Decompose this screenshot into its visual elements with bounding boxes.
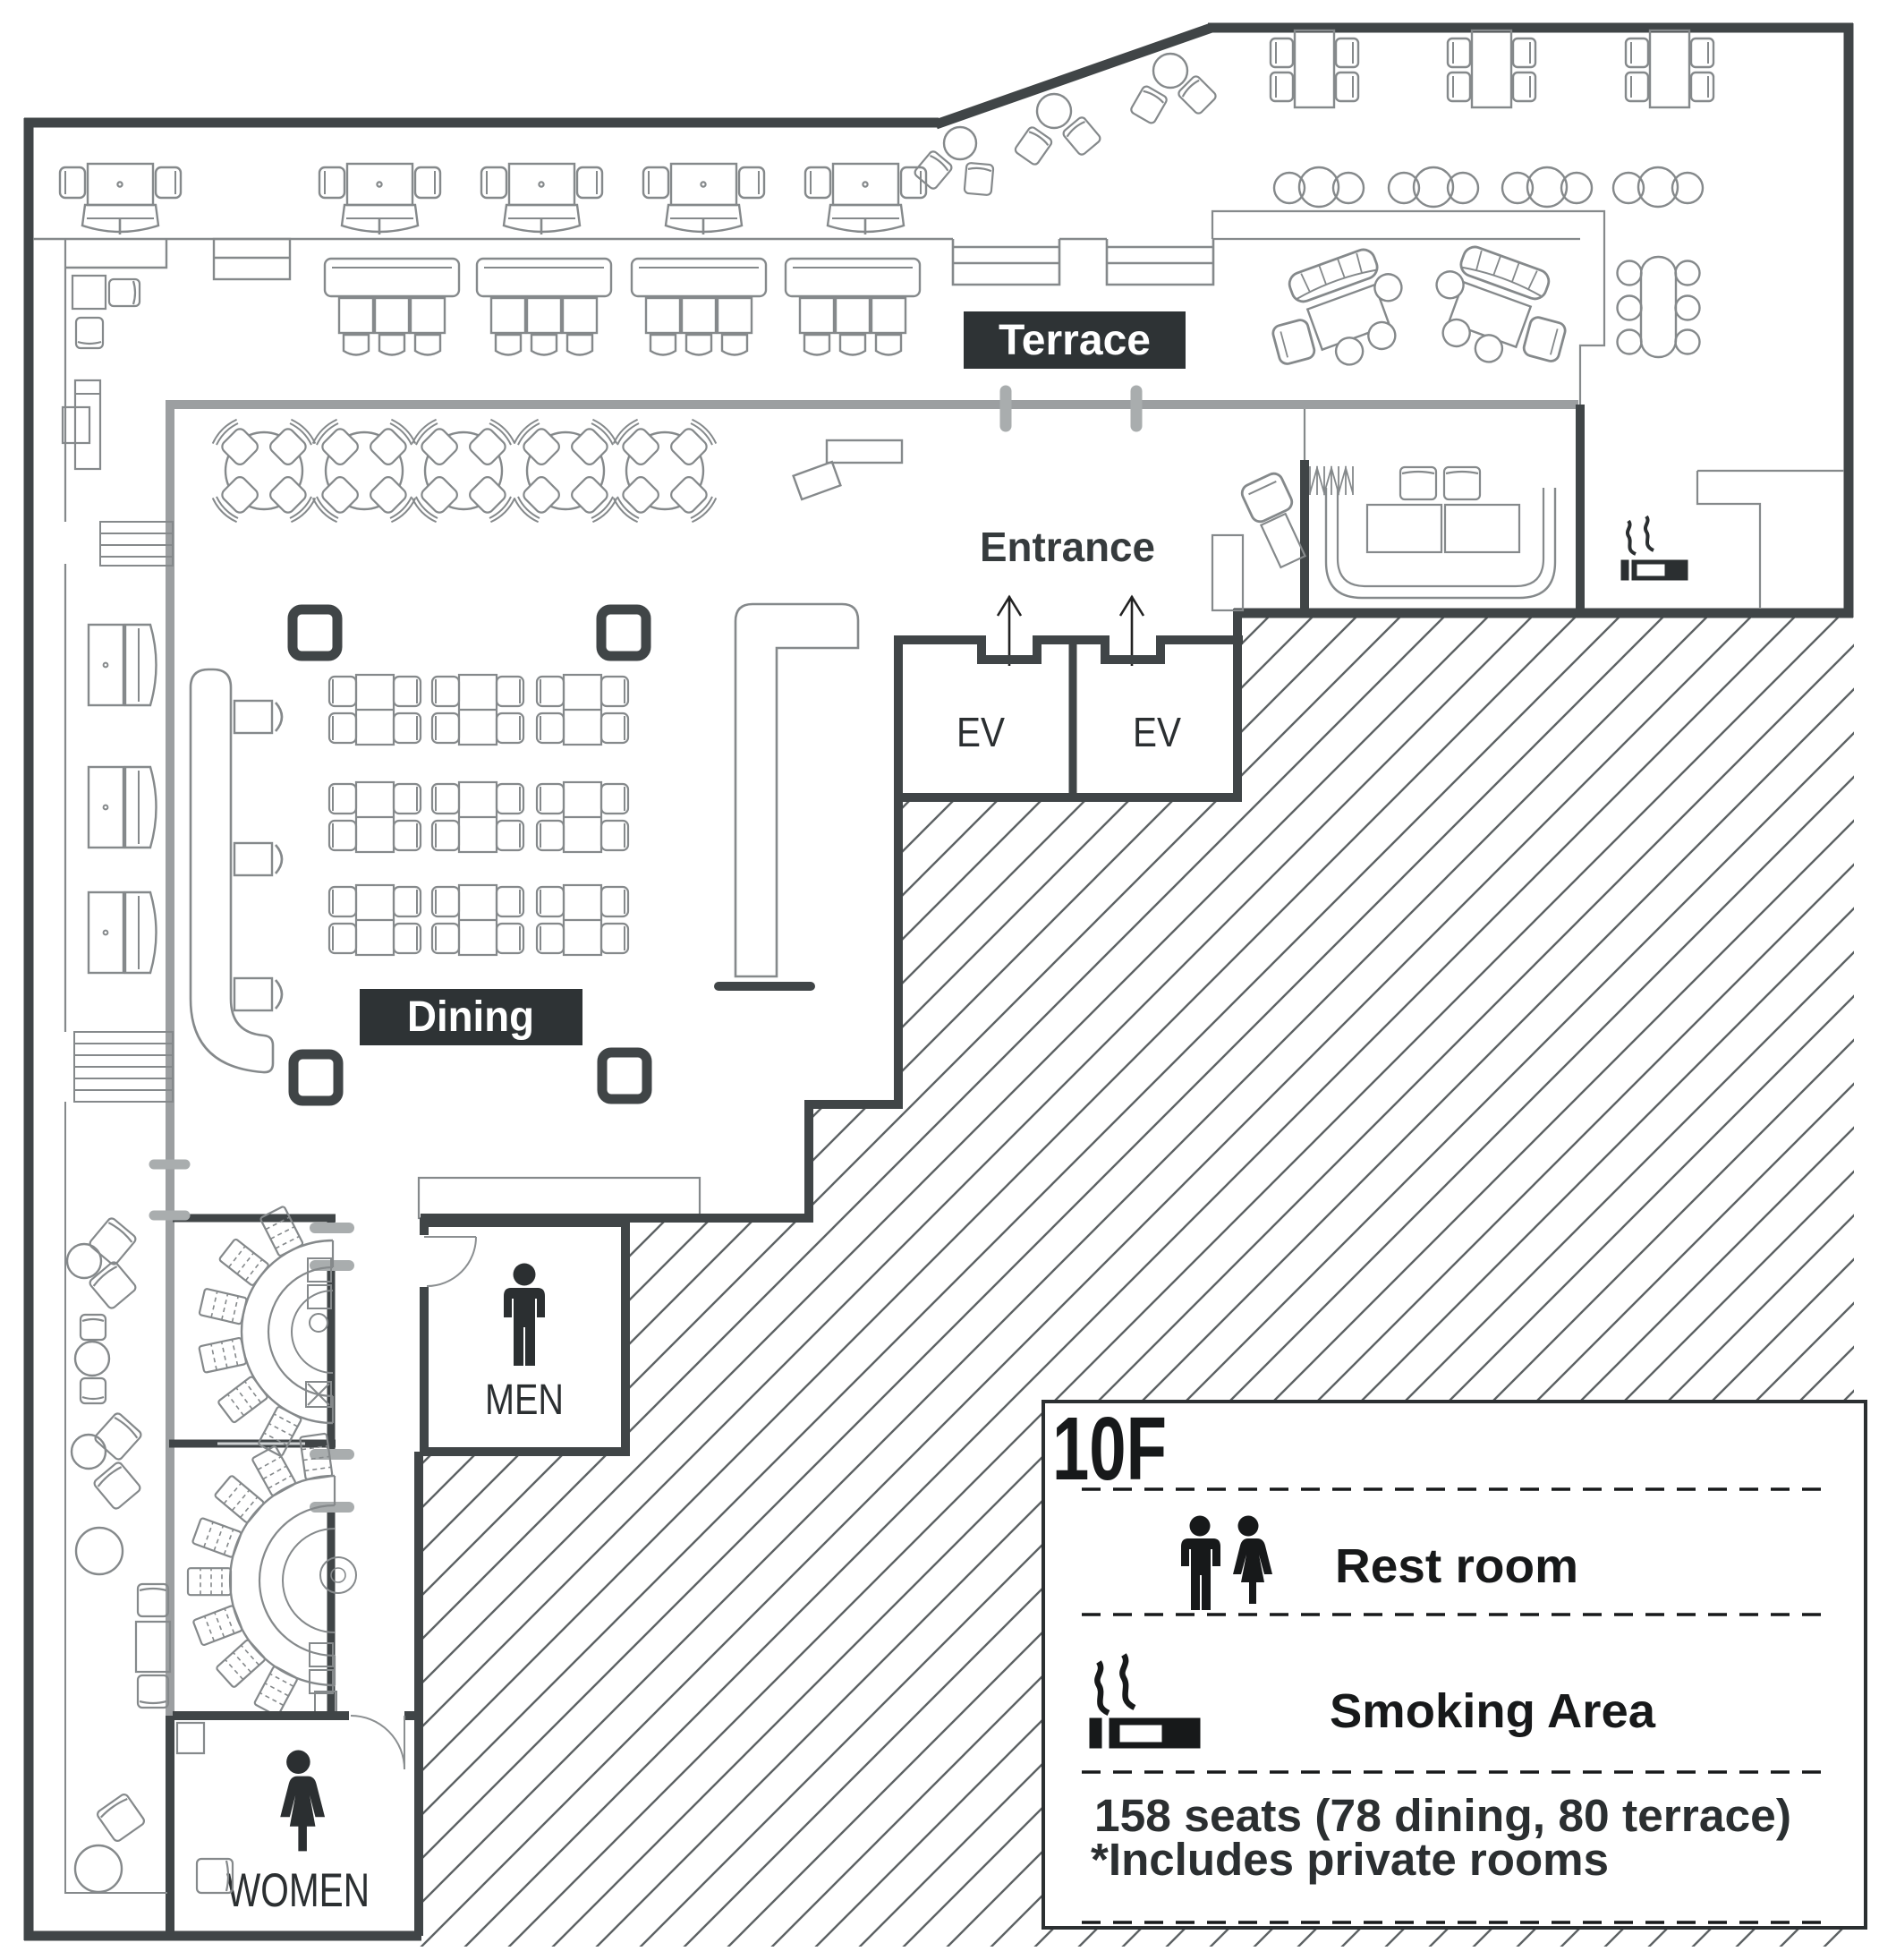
svg-text:10F: 10F xyxy=(1052,1399,1167,1499)
svg-text:WOMEN: WOMEN xyxy=(226,1864,370,1917)
svg-text:MEN: MEN xyxy=(485,1376,564,1424)
svg-text:Entrance: Entrance xyxy=(980,524,1155,570)
svg-text:Rest room: Rest room xyxy=(1335,1539,1578,1593)
svg-text:EV: EV xyxy=(957,709,1005,755)
svg-text:Terrace: Terrace xyxy=(999,317,1151,364)
svg-text:EV: EV xyxy=(1133,709,1181,755)
svg-text:*Includes private rooms: *Includes private rooms xyxy=(1091,1834,1609,1885)
svg-text:Smoking Area: Smoking Area xyxy=(1330,1684,1656,1738)
svg-text:Dining: Dining xyxy=(407,993,534,1041)
